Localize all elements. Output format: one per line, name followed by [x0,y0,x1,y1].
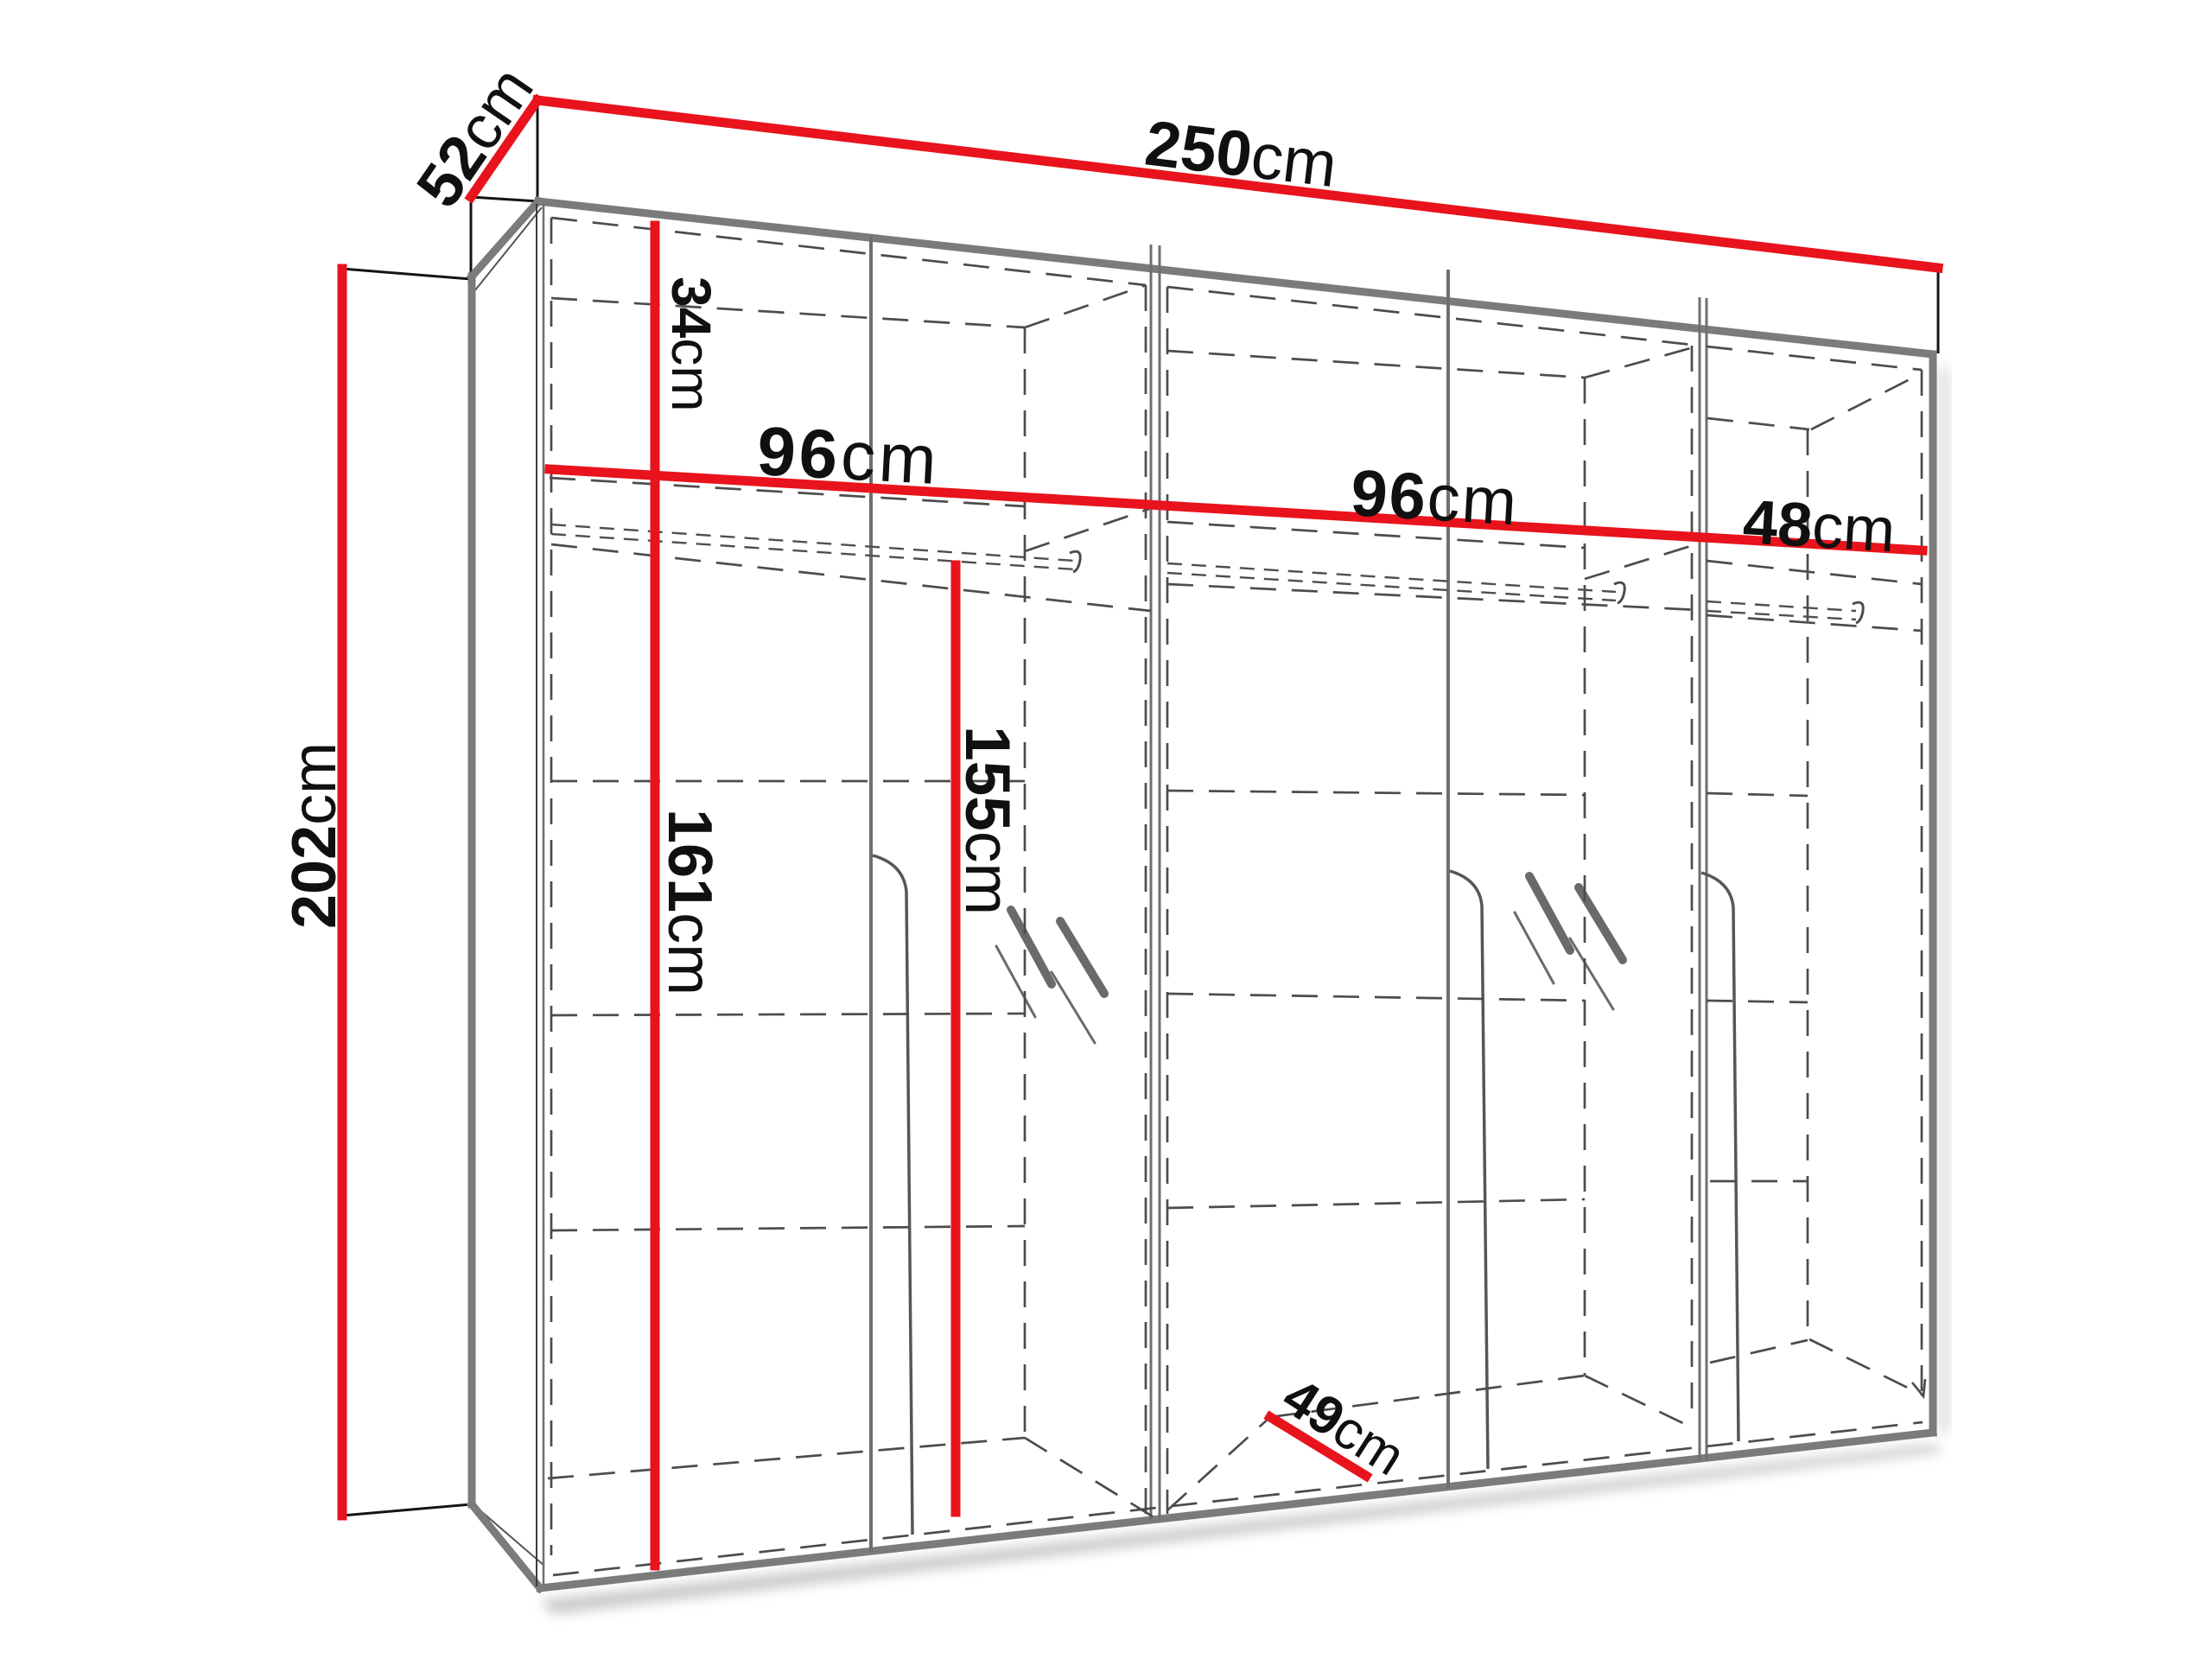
svg-text:161cm: 161cm [655,809,724,995]
svg-text:202cm: 202cm [280,742,349,929]
svg-text:34cm: 34cm [660,276,722,412]
svg-text:96cm: 96cm [1349,456,1521,539]
svg-text:155cm: 155cm [952,726,1022,915]
svg-text:96cm: 96cm [755,412,942,499]
svg-text:48cm: 48cm [1741,487,1897,565]
